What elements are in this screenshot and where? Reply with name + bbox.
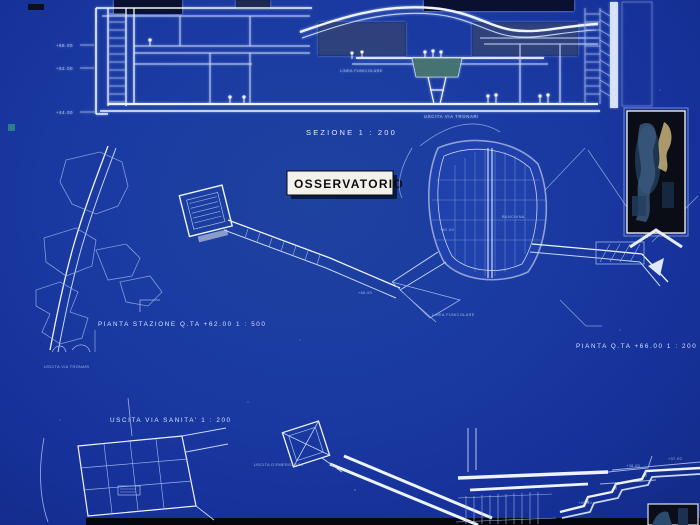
- lower-verticals: [468, 428, 476, 472]
- photo-content-2b: [678, 508, 688, 525]
- sanita-caption-box: [118, 486, 140, 495]
- flow-arrow-icon: [648, 258, 664, 276]
- br-elevation-c: +40.00: [578, 501, 592, 505]
- escape-gallery-1: [330, 464, 478, 525]
- section-drawing: +66.00 +62.00 +44.00 LINEA FUNICOLARE US…: [56, 0, 652, 119]
- dark-void: [114, 0, 182, 14]
- br-elevation-b: +37.00: [668, 457, 682, 461]
- person-icon: [495, 94, 497, 103]
- blueprint-scan: +66.00 +62.00 +44.00 LINEA FUNICOLARE US…: [0, 0, 700, 525]
- quota-66-label: +66.00: [358, 291, 372, 295]
- person-icon: [539, 95, 541, 103]
- person-icon: [229, 96, 231, 103]
- shaft-panel: [622, 2, 652, 106]
- right-shaft: [585, 2, 652, 108]
- linea-funicolare-section-label: LINEA FUNICOLARE: [340, 69, 383, 73]
- banchina-label: BANCHINA: [502, 215, 525, 219]
- photo-inset-top: [624, 108, 688, 247]
- left-block-shell: [96, 8, 312, 114]
- shaft-white-band: [610, 2, 618, 108]
- emergency-exit-plan: USCITA D'EMERGENZA: [254, 421, 700, 525]
- plan-66-label: PIANTA Q.TA +66.00 1 : 200: [576, 343, 697, 350]
- shaft-stem: [322, 458, 342, 472]
- person-icon: [440, 51, 442, 58]
- exit-sanita-plan: USCITA VIA SANITA' 1 : 200: [41, 398, 232, 522]
- blueprint-canvas: +66.00 +62.00 +44.00 LINEA FUNICOLARE US…: [0, 0, 700, 525]
- funicular-car: [412, 58, 462, 77]
- left-block-floors: [102, 16, 310, 104]
- section-scale-label: SEZIONE 1 : 200: [306, 128, 397, 137]
- edge-artifacts: [8, 4, 700, 525]
- person-icon: [547, 94, 549, 103]
- person-icon: [149, 39, 151, 46]
- plan-station-label: PIANTA STAZIONE Q.TA +62.00 1 : 500: [98, 321, 267, 328]
- section-elevations: +66.00 +62.00 +44.00: [56, 43, 96, 115]
- thick-band-2: [470, 484, 588, 490]
- br-elevation-a: +38.00: [626, 464, 640, 468]
- bottom-black-bar: [86, 518, 700, 525]
- exit-sanita-label: USCITA VIA SANITA' 1 : 200: [110, 417, 232, 424]
- thick-band-1: [458, 472, 608, 478]
- bottom-right-section: +38.00 +37.00 +40.00: [560, 457, 700, 525]
- linea-funicolare-plan-label: LINEA FUNICOLARE: [432, 313, 475, 317]
- osservatorio-title-box: OSSERVATORIO: [287, 171, 404, 199]
- teal-dot: [8, 124, 15, 131]
- uscita-tronari-section-label: USCITA VIA TRONARI: [424, 114, 479, 119]
- sanita-block-grid: [80, 439, 192, 513]
- person-icon: [487, 95, 489, 103]
- caption-bracket: [140, 300, 160, 312]
- corridor-lower: [224, 230, 396, 298]
- left-shaft-ladder: [108, 14, 126, 102]
- dark-mark: [28, 4, 44, 10]
- elevation-label: +66.00: [56, 43, 73, 48]
- elevation-label: +44.00: [56, 110, 73, 115]
- photo-inset-bottom: [648, 504, 698, 525]
- corridor-steps: [245, 229, 320, 264]
- braced-shaft: [282, 421, 329, 467]
- stair-shaft: [179, 185, 234, 244]
- page-title: OSSERVATORIO: [294, 177, 404, 191]
- emergency-exit-label: USCITA D'EMERGENZA: [254, 463, 303, 467]
- person-icon: [424, 51, 426, 58]
- elevation-label: +62.00: [56, 66, 73, 71]
- corridor-upper: [228, 220, 400, 288]
- east-corridor: [532, 244, 668, 282]
- east-corridor-2: [530, 252, 660, 286]
- funicular-track: [50, 146, 108, 350]
- left-shaft: [108, 8, 134, 106]
- quota-62-label: +62.00: [440, 228, 454, 232]
- person-icon: [243, 96, 245, 103]
- escape-gallery-2: [344, 456, 492, 518]
- person-icon: [432, 50, 434, 57]
- uscita-tronari-plan-label: USCITA VIA TRONARI: [44, 365, 90, 369]
- center-pillar: [428, 77, 446, 104]
